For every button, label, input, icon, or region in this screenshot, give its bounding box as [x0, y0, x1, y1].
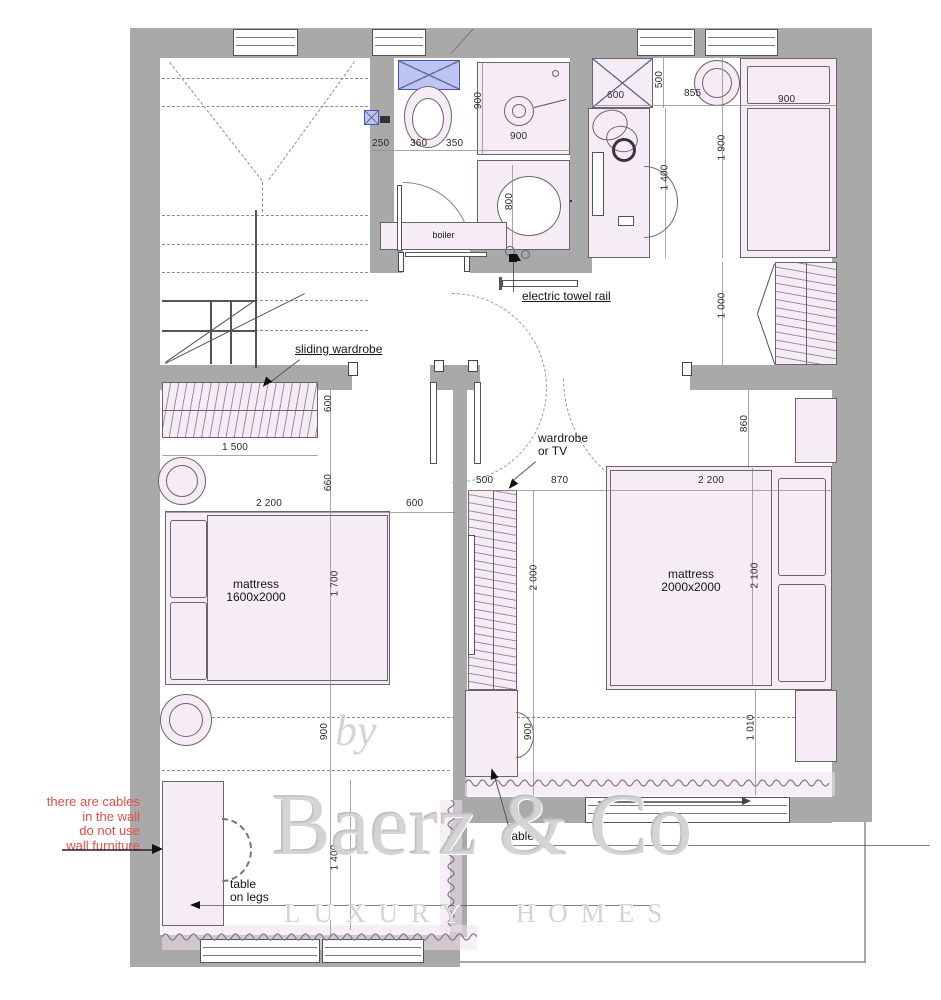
- desk-chair-seat: [612, 138, 636, 162]
- bathroom-wall-bottom: [470, 250, 592, 273]
- toilet-bowl-inner: [412, 98, 444, 140]
- tv: [468, 535, 475, 655]
- bathroom-door-leaf: [397, 185, 402, 251]
- wall-spine-block: [453, 797, 543, 823]
- bed2-pillow: [778, 478, 826, 576]
- keyboard: [618, 216, 634, 226]
- wardrobe-door-line: [757, 264, 775, 314]
- dimension-label: 600: [323, 395, 334, 412]
- window: [705, 29, 778, 56]
- boiler-shelf: [405, 252, 487, 257]
- door-jamb: [434, 360, 444, 372]
- note-line: in the wall: [18, 810, 140, 825]
- bed2-pillow: [778, 584, 826, 682]
- bed-left-label: mattress1600x2000: [210, 578, 302, 604]
- leader-line: [504, 845, 930, 846]
- door-leaf: [430, 382, 437, 464]
- dimension-label: 900: [319, 723, 330, 740]
- dim-line: [350, 780, 351, 930]
- bed-pillow: [170, 602, 207, 680]
- dimension-label: 900: [473, 92, 484, 109]
- water-point: [364, 110, 379, 125]
- dimension-label: 600: [406, 498, 423, 509]
- dimension-label: 250: [372, 138, 389, 149]
- dimension-label: 860: [739, 415, 750, 432]
- dim-line: [162, 455, 318, 456]
- single-bed-mattress: [747, 108, 830, 251]
- dimension-label: 1 700: [330, 570, 341, 596]
- desk-shelf: [592, 152, 604, 216]
- bed-pillow: [170, 520, 207, 598]
- bed-right-label: mattress2000x2000: [645, 568, 737, 594]
- dimension-label: 2 100: [750, 562, 761, 588]
- note-line: there are cables: [18, 795, 140, 810]
- dimension-label: 900: [523, 723, 534, 740]
- dimension-label: 350: [446, 138, 463, 149]
- tap-icon: [380, 116, 390, 123]
- stair-line: [162, 244, 368, 245]
- dimension-label: 2 200: [256, 498, 282, 509]
- watermark-by: by: [335, 705, 377, 756]
- door-leaf: [474, 382, 481, 464]
- stair-line: [262, 182, 263, 212]
- wardrobe-or-tv-label: wardrobeor TV: [538, 432, 588, 458]
- leader-arrow: [190, 901, 200, 909]
- stair-line: [162, 78, 368, 79]
- wardrobe-hanging: [775, 262, 837, 365]
- dimension-label: 2 000: [529, 564, 540, 590]
- dimension-label: 360: [410, 138, 427, 149]
- wardrobe-door-line: [757, 314, 775, 364]
- window: [637, 29, 695, 56]
- stair-line: [255, 300, 368, 301]
- balcony-edge: [460, 961, 866, 963]
- table-label: table: [508, 830, 534, 843]
- pouf-inner: [166, 465, 198, 497]
- dimension-label: 870: [551, 475, 568, 486]
- dimension-label: 1 400: [330, 844, 341, 870]
- nightstand: [795, 398, 837, 463]
- dim-line: [372, 150, 570, 151]
- stair-line: [162, 106, 368, 107]
- stair-diagonal: [169, 62, 262, 181]
- dimension-label: 660: [323, 474, 334, 491]
- dimension-label: 1 400: [660, 164, 671, 190]
- wall-bedroom2-bottom-corner: [790, 797, 832, 823]
- sliding-arrow-head: [742, 797, 751, 805]
- note-arrow-line: [62, 849, 154, 851]
- dim-line: [165, 512, 455, 513]
- window: [233, 29, 298, 56]
- door-jamb: [348, 362, 358, 376]
- note-line: wall furniture: [18, 839, 140, 854]
- dim-line: [468, 490, 832, 491]
- pouf-inner: [169, 703, 203, 737]
- stair-diagonal: [165, 302, 253, 363]
- wall-bedroom2-top: [690, 365, 832, 390]
- curtain-wave: [162, 930, 477, 944]
- door-jamb: [468, 360, 478, 372]
- dimension-label: 1 900: [717, 134, 728, 160]
- dimension-label: 900: [778, 94, 795, 105]
- segmented-chair: [222, 818, 252, 882]
- dimension-label: 500: [654, 71, 665, 88]
- boiler-label: boiler: [432, 230, 454, 240]
- stair-tread: [230, 302, 232, 364]
- stair-line: [162, 215, 368, 216]
- stair-diagonal: [268, 61, 355, 180]
- stair-diagonal: [165, 293, 305, 364]
- shower-drain-inner: [512, 104, 526, 118]
- dim-line: [592, 105, 837, 106]
- center-table: [465, 690, 518, 777]
- leader-line: [198, 905, 650, 906]
- drain-mark: [513, 254, 521, 261]
- door-jamb: [398, 252, 404, 272]
- dimension-label: 855: [684, 88, 701, 99]
- cables-warning-note: there are cablesin the walldo not usewal…: [18, 795, 140, 853]
- stair-tread: [162, 300, 255, 302]
- wardrobe-or-tv: [468, 490, 517, 690]
- reference-line: [162, 770, 450, 771]
- dimension-label: 800: [504, 193, 515, 210]
- nightstand: [795, 690, 837, 762]
- shower-valve: [552, 70, 559, 77]
- stair-line: [162, 272, 368, 273]
- stair-line: [255, 330, 368, 331]
- floor-plan: boiler mattress1600x2000: [0, 0, 941, 1000]
- dimension-label: 2 200: [698, 475, 724, 486]
- wall-right: [832, 28, 872, 822]
- leader-line: [512, 461, 536, 481]
- stair-rail: [255, 210, 257, 368]
- dim-line: [533, 490, 534, 795]
- sliding-arrow-line: [598, 801, 742, 803]
- dim-line: [755, 690, 756, 795]
- note-arrow-head: [152, 844, 163, 854]
- bathroom-door-swing: [335, 182, 471, 318]
- dimension-label: 900: [510, 131, 527, 142]
- dimension-label: 1 000: [717, 292, 728, 318]
- dimension-label: 1 010: [746, 714, 757, 740]
- electric-towel-rail-label: electric towel rail: [522, 290, 611, 303]
- note-line: do not use: [18, 824, 140, 839]
- sliding-wardrobe: [162, 382, 318, 438]
- wall-bedroom2-bottom: [543, 797, 585, 823]
- window: [372, 29, 426, 56]
- balcony-edge: [864, 822, 866, 962]
- dimension-label: 600: [607, 90, 624, 101]
- curtain-wave: [465, 776, 835, 790]
- sliding-wardrobe-label: sliding wardrobe: [295, 343, 382, 356]
- dimension-label: 500: [476, 475, 493, 486]
- leader-line: [513, 262, 514, 292]
- table-on-legs-label: tableon legs: [230, 878, 269, 904]
- armchair-inner: [702, 68, 732, 98]
- stair-tread: [210, 302, 212, 364]
- door-jamb: [682, 362, 692, 376]
- tap-valve: [521, 250, 530, 259]
- dimension-label: 1 500: [222, 442, 248, 453]
- curtain-wave: [444, 800, 458, 930]
